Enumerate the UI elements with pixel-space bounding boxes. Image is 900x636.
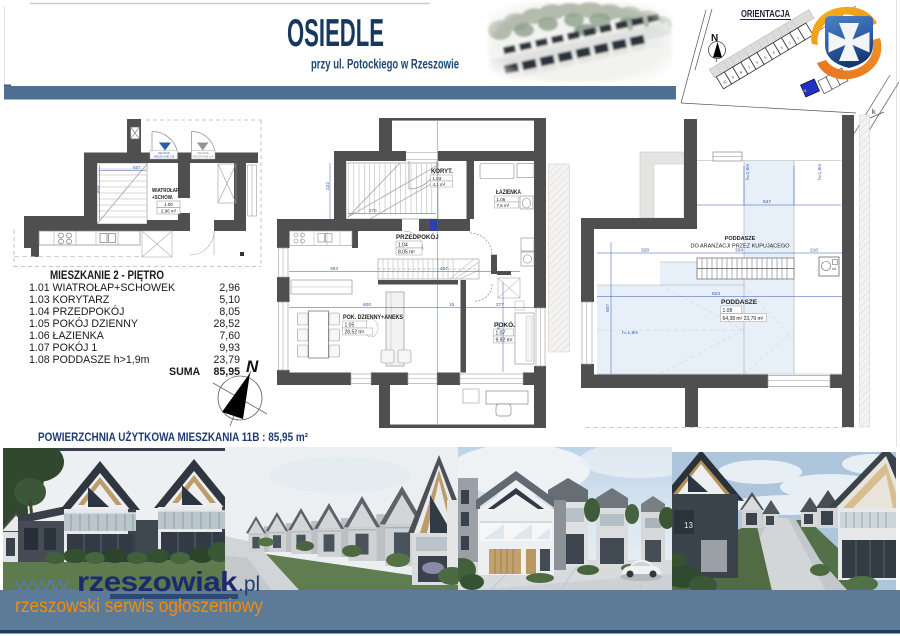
svg-text:N: N xyxy=(246,357,259,376)
svg-text:28,52 m²: 28,52 m² xyxy=(345,330,365,336)
svg-text:270: 270 xyxy=(369,208,377,213)
svg-text:rzeszowski serwis ogłoszeniowy: rzeszowski serwis ogłoszeniowy xyxy=(15,595,263,617)
svg-text:1.04 PRZEDPOKÓJ: 1.04 PRZEDPOKÓJ xyxy=(29,305,124,318)
svg-text:OSIEDLE: OSIEDLE xyxy=(287,12,384,55)
svg-text:210: 210 xyxy=(810,248,818,254)
svg-text:MIESZKANIE 11A: MIESZKANIE 11A xyxy=(193,155,214,159)
svg-text:823: 823 xyxy=(712,291,720,297)
svg-text:8,05 m²: 8,05 m² xyxy=(398,250,415,256)
svg-text:222: 222 xyxy=(325,182,331,190)
svg-text:4,1 m²: 4,1 m² xyxy=(433,182,446,187)
svg-text:PRZEDPOKÓJ: PRZEDPOKÓJ xyxy=(396,233,439,241)
svg-text:277: 277 xyxy=(496,302,504,308)
svg-text:28,52: 28,52 xyxy=(213,318,240,330)
svg-text:PODDASZE: PODDASZE xyxy=(725,236,756,242)
svg-text:1.08 PODDASZE h>1,9m: 1.08 PODDASZE h>1,9m xyxy=(29,354,150,366)
svg-text:507: 507 xyxy=(605,304,611,312)
svg-text:MIESZKANIE 2 - PIĘTRO: MIESZKANIE 2 - PIĘTRO xyxy=(50,270,164,282)
svg-text:PODDASZE: PODDASZE xyxy=(721,299,758,306)
svg-text:1.03 KORYTARZ: 1.03 KORYTARZ xyxy=(29,294,110,306)
svg-text:13: 13 xyxy=(684,521,693,530)
svg-text:przy ul. Potockiego w Rzeszowi: przy ul. Potockiego w Rzeszowie xyxy=(311,57,459,72)
svg-text:1.01 WIATROŁAP+SCHOWEK: 1.01 WIATROŁAP+SCHOWEK xyxy=(29,282,175,294)
svg-text:1.06 ŁAZIENKA: 1.06 ŁAZIENKA xyxy=(29,330,105,342)
svg-text:2,96 m²: 2,96 m² xyxy=(161,209,177,214)
svg-text:www.: www. xyxy=(14,574,74,596)
svg-text:MIESZKANIE 11B: MIESZKANIE 11B xyxy=(154,155,175,159)
svg-text:23,79: 23,79 xyxy=(213,354,240,366)
svg-text:1.08: 1.08 xyxy=(723,308,733,314)
svg-text:h=1,9m: h=1,9m xyxy=(817,164,823,180)
svg-text:334: 334 xyxy=(735,248,743,254)
svg-text:ORIENTACJA: ORIENTACJA xyxy=(741,9,790,20)
svg-text:POWIERZCHNIA UŻYTKOWA MIESZKAN: POWIERZCHNIA UŻYTKOWA MIESZKANIA 11B : 8… xyxy=(38,431,308,444)
svg-text:1.05: 1.05 xyxy=(345,323,355,329)
svg-text:1.03: 1.03 xyxy=(433,176,442,181)
svg-text:.pl: .pl xyxy=(238,573,260,596)
svg-text:7,60: 7,60 xyxy=(219,330,240,342)
svg-text:557: 557 xyxy=(133,165,141,170)
svg-text:+SCHOW.: +SCHOW. xyxy=(152,195,173,201)
svg-text:8,05: 8,05 xyxy=(219,306,240,318)
svg-text:rzeszowiak: rzeszowiak xyxy=(77,566,238,597)
svg-text:64,38 m² 23,79 m²: 64,38 m² 23,79 m² xyxy=(723,316,764,322)
svg-text:1.07: 1.07 xyxy=(496,331,506,337)
svg-text:600: 600 xyxy=(363,302,371,308)
svg-text:407: 407 xyxy=(440,266,448,272)
svg-text:547: 547 xyxy=(763,199,771,205)
svg-text:WIATROŁAP: WIATROŁAP xyxy=(152,188,179,194)
svg-text:POK. DZIENNY+ANEKS: POK. DZIENNY+ANEKS xyxy=(343,314,403,321)
svg-text:11: 11 xyxy=(803,89,807,93)
svg-text:9,93: 9,93 xyxy=(219,342,240,354)
svg-text:1.00: 1.00 xyxy=(164,202,173,207)
svg-text:1.06: 1.06 xyxy=(497,197,506,202)
svg-text:1.05 POKÓJ DZIENNY: 1.05 POKÓJ DZIENNY xyxy=(29,317,138,330)
svg-text:ŁAZIENKA: ŁAZIENKA xyxy=(496,190,522,196)
svg-text:k: k xyxy=(872,109,876,116)
svg-text:328: 328 xyxy=(641,248,649,254)
svg-text:SUMA: SUMA xyxy=(169,366,201,378)
svg-text:2,96: 2,96 xyxy=(219,282,240,294)
svg-text:N: N xyxy=(711,33,718,44)
svg-text:9,92 m²: 9,92 m² xyxy=(496,338,513,344)
svg-text:1.04: 1.04 xyxy=(398,243,408,249)
svg-text:KORYT.: KORYT. xyxy=(431,169,453,175)
svg-text:h=1,9m: h=1,9m xyxy=(745,164,751,180)
svg-text:h=1,9m: h=1,9m xyxy=(622,330,638,336)
svg-text:1.07 POKÓJ 1: 1.07 POKÓJ 1 xyxy=(29,341,97,354)
svg-text:7,6 m²: 7,6 m² xyxy=(497,203,510,208)
svg-text:342: 342 xyxy=(496,322,502,330)
svg-text:353: 353 xyxy=(330,266,338,272)
svg-text:15: 15 xyxy=(449,302,455,308)
svg-text:5,10: 5,10 xyxy=(219,294,240,306)
